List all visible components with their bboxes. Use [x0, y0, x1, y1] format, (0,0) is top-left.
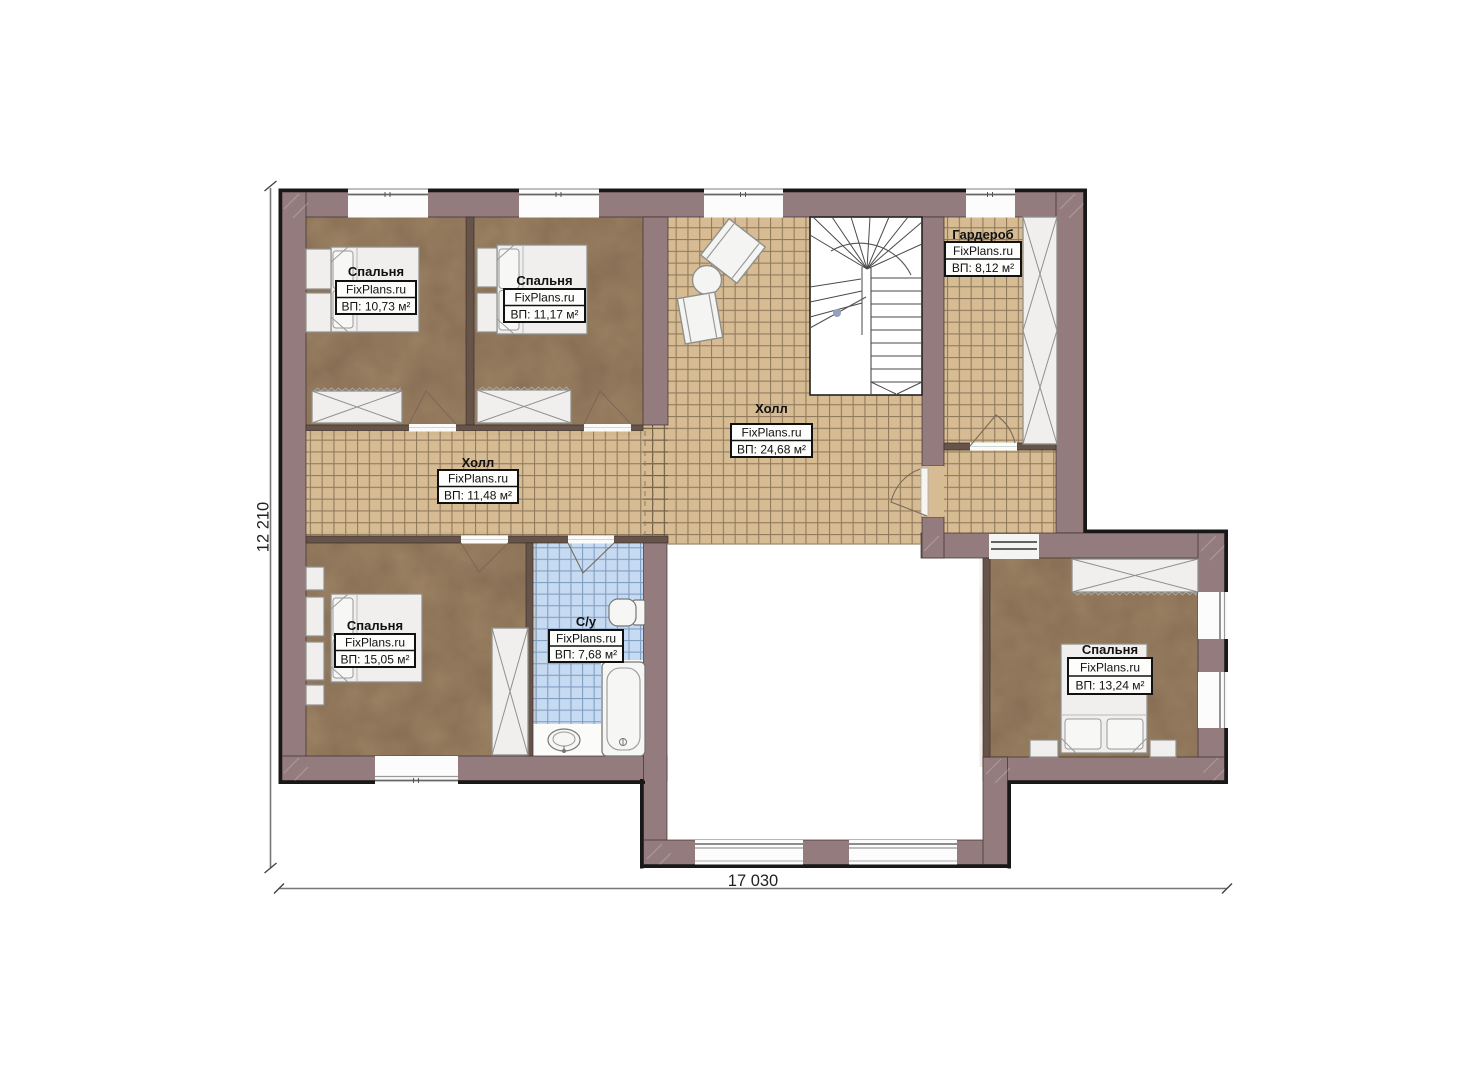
svg-text:ВП: 7,68 м²: ВП: 7,68 м²	[555, 648, 617, 662]
svg-text:17 030: 17 030	[728, 872, 778, 890]
svg-text:12 210: 12 210	[255, 502, 273, 552]
svg-text:Спальня: Спальня	[1082, 642, 1138, 657]
svg-text:FixPlans.ru: FixPlans.ru	[448, 472, 508, 486]
svg-text:Гардероб: Гардероб	[952, 227, 1013, 242]
svg-text:FixPlans.ru: FixPlans.ru	[514, 291, 574, 305]
svg-text:ВП: 10,73 м²: ВП: 10,73 м²	[342, 299, 411, 313]
svg-text:С/у: С/у	[576, 614, 597, 629]
svg-text:ВП: 8,12 м²: ВП: 8,12 м²	[952, 261, 1014, 275]
svg-text:FixPlans.ru: FixPlans.ru	[953, 244, 1013, 258]
svg-text:ВП: 11,17 м²: ВП: 11,17 м²	[510, 307, 578, 321]
svg-text:FixPlans.ru: FixPlans.ru	[1080, 660, 1140, 674]
svg-text:Спальня: Спальня	[348, 264, 404, 279]
svg-text:ВП: 11,48 м²: ВП: 11,48 м²	[444, 488, 512, 502]
svg-text:FixPlans.ru: FixPlans.ru	[345, 636, 405, 650]
svg-text:Холл: Холл	[755, 401, 788, 416]
svg-text:ВП: 24,68 м²: ВП: 24,68 м²	[737, 442, 806, 456]
svg-text:Спальня: Спальня	[347, 618, 403, 633]
svg-text:FixPlans.ru: FixPlans.ru	[346, 283, 406, 297]
svg-text:Холл: Холл	[462, 455, 495, 470]
svg-text:ВП: 15,05 м²: ВП: 15,05 м²	[341, 652, 410, 666]
svg-text:FixPlans.ru: FixPlans.ru	[556, 631, 616, 645]
svg-text:Спальня: Спальня	[516, 273, 572, 288]
svg-text:FixPlans.ru: FixPlans.ru	[741, 426, 801, 440]
svg-text:ВП: 13,24 м²: ВП: 13,24 м²	[1076, 679, 1145, 693]
